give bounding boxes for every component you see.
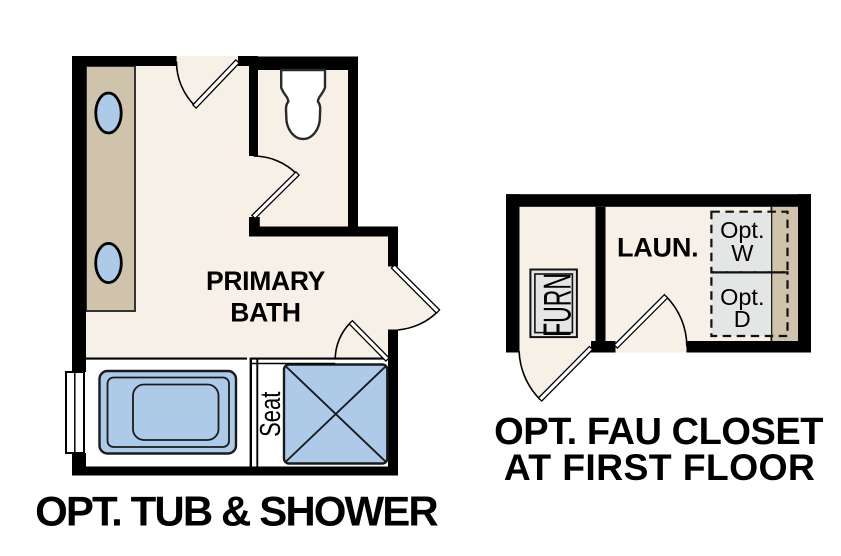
svg-text:W: W [731, 240, 754, 266]
svg-text:FURN: FURN [535, 273, 579, 337]
svg-text:AT FIRST FLOOR: AT FIRST FLOOR [504, 446, 816, 488]
svg-text:OPT. TUB & SHOWER: OPT. TUB & SHOWER [35, 488, 438, 535]
svg-text:D: D [734, 306, 751, 332]
svg-text:Seat: Seat [255, 392, 286, 437]
svg-text:PRIMARY: PRIMARY [206, 266, 326, 296]
svg-text:BATH: BATH [230, 297, 300, 327]
svg-text:LAUN.: LAUN. [617, 233, 699, 263]
